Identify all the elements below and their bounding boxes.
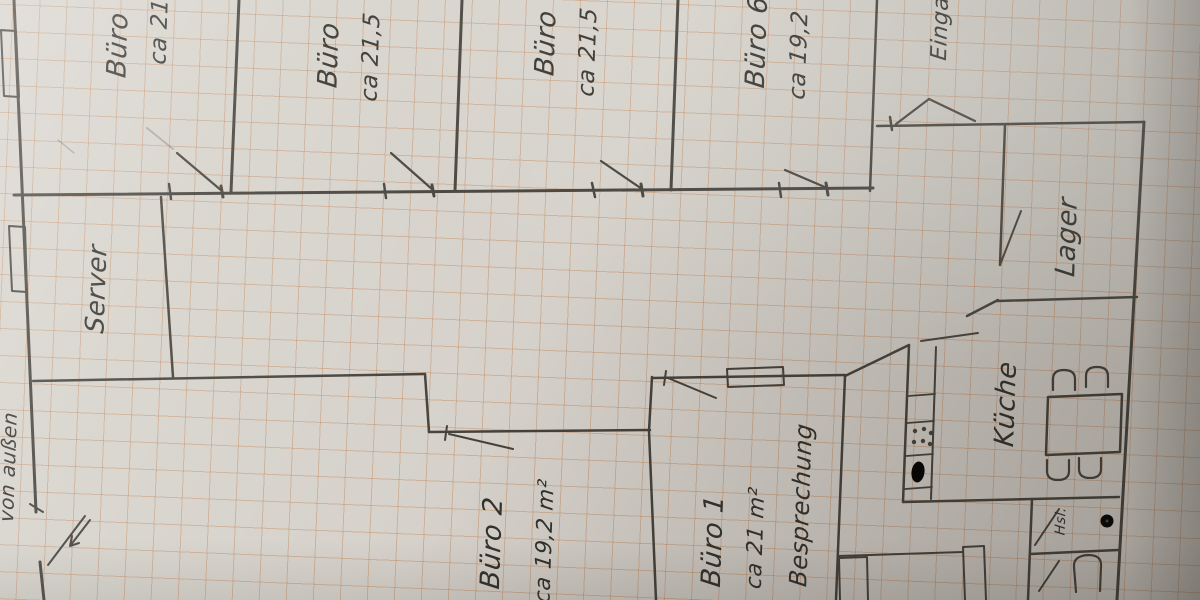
door-frame-icon <box>839 557 868 600</box>
label-eingang: Eingang <box>927 0 955 62</box>
label-von-aussen: von außen <box>0 411 22 524</box>
label-buero-top4: Büro 6 <box>740 0 774 90</box>
label-lager: Lager <box>1050 196 1084 279</box>
kitchen-diagonal-wall <box>845 300 998 376</box>
label-buero-top4-area: ca 19,2 <box>784 9 813 101</box>
label-buero1-area: ca 21 m² <box>742 486 770 591</box>
label-server: Server <box>81 243 114 335</box>
door-swing-buero1 <box>668 378 716 398</box>
door-swing-kitchen <box>921 333 978 341</box>
label-buero-top1-area: ca 21,5 <box>145 0 174 66</box>
label-buero2-area: ca 19,2 m² <box>530 478 559 600</box>
kitchen-table <box>1046 394 1122 455</box>
chair-icons <box>1047 367 1108 480</box>
label-buero1: Büro 1 <box>696 493 730 589</box>
floorplan-drawing <box>0 0 1200 600</box>
corridor-wall <box>14 183 873 199</box>
label-buero-top2: Büro <box>312 20 345 89</box>
outer-right-wall <box>1117 122 1144 600</box>
door-swing-outside <box>48 516 85 565</box>
lower-left-walls <box>33 374 650 449</box>
door-swing-buero2 <box>449 434 513 449</box>
label-kueche: Küche <box>989 360 1023 449</box>
stove-burners-icon <box>912 427 933 446</box>
door-swing-lager <box>1000 211 1021 265</box>
floorplan-photo: Büro ca 21,5 Büro ca 21,5 Büro ca 21,5 B… <box>0 0 1200 600</box>
sink-icon <box>910 461 926 484</box>
door-swing-wc <box>1039 561 1059 591</box>
label-buero2: Büro 2 <box>475 495 509 591</box>
label-besprechung: Besprechung <box>784 422 818 588</box>
window-icon <box>1 30 27 292</box>
bottom-right-walls <box>838 499 1118 600</box>
outer-left-wall <box>14 0 85 600</box>
label-buero-top3: Büro <box>529 8 562 77</box>
door-frame-icon <box>963 546 986 600</box>
label-buero-top1: Büro <box>101 10 134 79</box>
label-buero-top2-area: ca 21,5 <box>356 11 385 103</box>
label-hsl: Hsl. <box>1053 506 1070 536</box>
office-door-swings <box>177 153 827 191</box>
server-room-wall <box>161 197 173 377</box>
lager-walls <box>877 122 1144 301</box>
toilet-icon <box>1074 555 1101 592</box>
label-buero-top3-area: ca 21,5 <box>573 6 602 98</box>
pencil-smudge <box>58 128 173 153</box>
